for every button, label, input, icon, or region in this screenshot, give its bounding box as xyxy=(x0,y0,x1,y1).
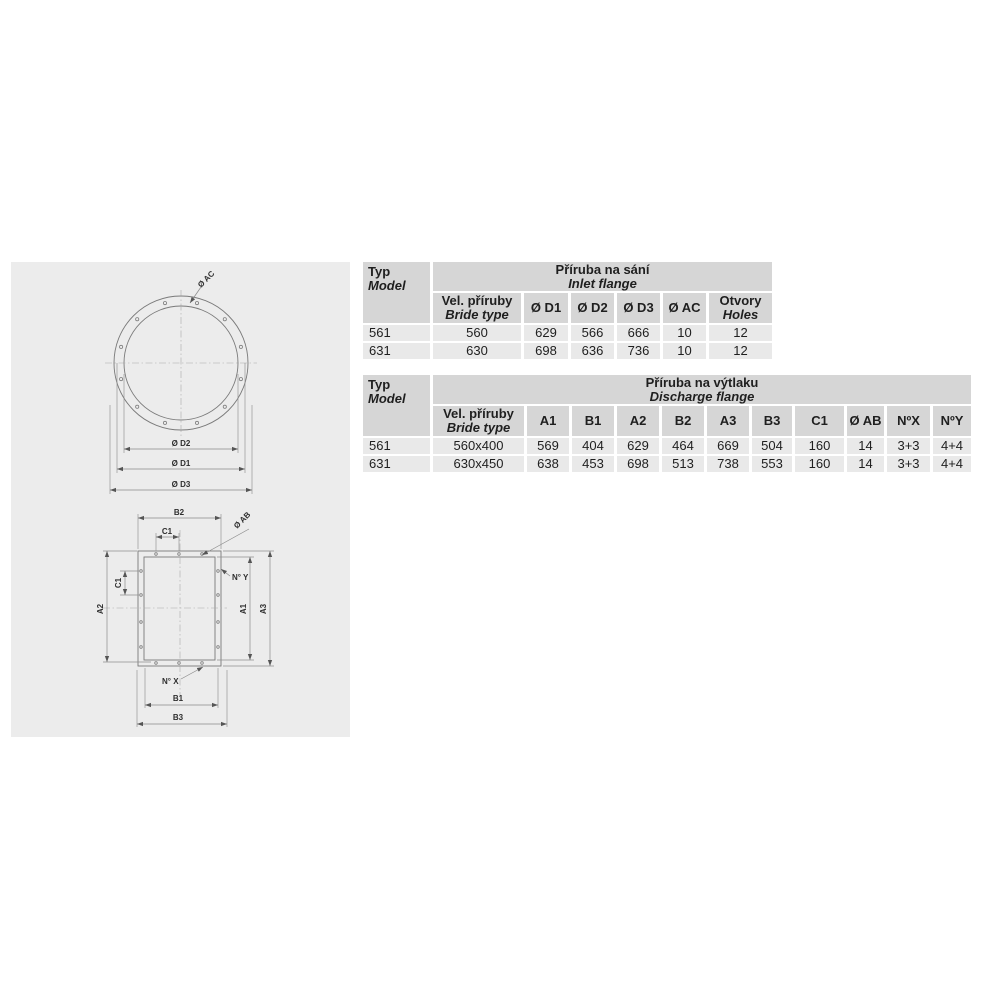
column-header: NºX xyxy=(887,406,930,436)
data-cell: 504 xyxy=(752,438,792,454)
column-header: A3 xyxy=(707,406,749,436)
column-header: Ø AC xyxy=(663,293,706,323)
dim-label-a3: A3 xyxy=(259,603,268,614)
dim-label-d3: Ø D3 xyxy=(172,480,191,489)
hole-diameter-label-ac: Ø AC xyxy=(196,269,216,289)
leader-line-ny xyxy=(221,569,230,576)
data-cell: 4+4 xyxy=(933,456,971,472)
corner-line2: Model xyxy=(368,279,406,293)
model-cell: 561 xyxy=(363,438,430,454)
column-header: Ø D1 xyxy=(524,293,568,323)
column-header: B1 xyxy=(572,406,614,436)
data-cell: 553 xyxy=(752,456,792,472)
data-cell: 14 xyxy=(847,456,884,472)
table-title-czech: Příruba na výtlaku xyxy=(646,376,759,390)
corner-line1: Typ xyxy=(368,265,390,279)
rect-flange-drawing: B2 C1 Ø AB N° Y C1 xyxy=(96,508,274,727)
column-header: C1 xyxy=(795,406,844,436)
dim-label-b3: B3 xyxy=(173,713,184,722)
data-cell: 698 xyxy=(617,456,659,472)
data-cell: 569 xyxy=(527,438,569,454)
dim-label-b2: B2 xyxy=(174,508,185,517)
table-corner-header: Typ Model xyxy=(363,262,430,323)
data-cell: 638 xyxy=(527,456,569,472)
data-cell: 560 xyxy=(433,325,521,341)
model-cell: 561 xyxy=(363,325,430,341)
data-cell: 3+3 xyxy=(887,438,930,454)
data-cell: 698 xyxy=(524,343,568,359)
column-header: Ø D3 xyxy=(617,293,660,323)
data-cell: 160 xyxy=(795,438,844,454)
data-cell: 738 xyxy=(707,456,749,472)
data-cell: 636 xyxy=(571,343,614,359)
inlet-flange-table: Typ Model Příruba na sání Inlet flange V… xyxy=(363,262,772,359)
flange-drawings: Ø AC Ø D2 Ø D1 Ø D3 xyxy=(11,262,350,737)
data-cell: 3+3 xyxy=(887,456,930,472)
dim-label-d1: Ø D1 xyxy=(172,459,191,468)
data-cell: 630 xyxy=(433,343,521,359)
circle-flange-drawing: Ø AC Ø D2 Ø D1 Ø D3 xyxy=(105,269,257,494)
dim-label-a2: A2 xyxy=(96,603,105,614)
catalog-page: Ø AC Ø D2 Ø D1 Ø D3 xyxy=(0,0,1000,1000)
dim-label-b1: B1 xyxy=(173,694,184,703)
data-cell: 669 xyxy=(707,438,749,454)
data-cell: 630x450 xyxy=(433,456,524,472)
dim-label-a1: A1 xyxy=(239,603,248,614)
label-n-y: N° Y xyxy=(232,573,249,582)
table-corner-header: Typ Model xyxy=(363,375,430,436)
dim-label-d2: Ø D2 xyxy=(172,439,191,448)
dim-label-c1-top: C1 xyxy=(162,527,173,536)
table-title-english: Discharge flange xyxy=(650,390,755,404)
data-cell: 14 xyxy=(847,438,884,454)
data-cell: 4+4 xyxy=(933,438,971,454)
data-cell: 453 xyxy=(572,456,614,472)
data-cell: 513 xyxy=(662,456,704,472)
data-cell: 10 xyxy=(663,325,706,341)
data-cell: 160 xyxy=(795,456,844,472)
table-title-english: Inlet flange xyxy=(568,277,637,291)
data-cell: 10 xyxy=(663,343,706,359)
leader-line-nx xyxy=(181,667,203,679)
model-cell: 631 xyxy=(363,343,430,359)
column-header: A2 xyxy=(617,406,659,436)
data-cell: 464 xyxy=(662,438,704,454)
label-n-x: N° X xyxy=(162,677,179,686)
column-header: Ø D2 xyxy=(571,293,614,323)
model-cell: 631 xyxy=(363,456,430,472)
column-header: Ø AB xyxy=(847,406,884,436)
hole-diameter-label-ab: Ø AB xyxy=(232,510,252,530)
column-header: B2 xyxy=(662,406,704,436)
data-cell: 566 xyxy=(571,325,614,341)
column-header: NºY xyxy=(933,406,971,436)
column-header: A1 xyxy=(527,406,569,436)
discharge-flange-table: Typ Model Příruba na výtlaku Discharge f… xyxy=(363,375,971,472)
data-cell: 666 xyxy=(617,325,660,341)
drawing-panel: Ø AC Ø D2 Ø D1 Ø D3 xyxy=(11,262,350,737)
data-cell: 560x400 xyxy=(433,438,524,454)
data-cell: 404 xyxy=(572,438,614,454)
column-header: Vel. příruby Bride type xyxy=(433,293,521,323)
data-cell: 12 xyxy=(709,343,772,359)
column-header: B3 xyxy=(752,406,792,436)
table-title: Příruba na výtlaku Discharge flange xyxy=(433,375,971,404)
table-title-czech: Příruba na sání xyxy=(556,263,650,277)
data-cell: 12 xyxy=(709,325,772,341)
data-cell: 629 xyxy=(617,438,659,454)
table-title: Příruba na sání Inlet flange xyxy=(433,262,772,291)
column-header: Otvory Holes xyxy=(709,293,772,323)
column-header: Vel. příruby Bride type xyxy=(433,406,524,436)
data-cell: 736 xyxy=(617,343,660,359)
dim-label-c1-left: C1 xyxy=(114,577,123,588)
data-cell: 629 xyxy=(524,325,568,341)
bolt-holes-rect xyxy=(140,553,220,665)
leader-line-ac xyxy=(190,287,201,303)
